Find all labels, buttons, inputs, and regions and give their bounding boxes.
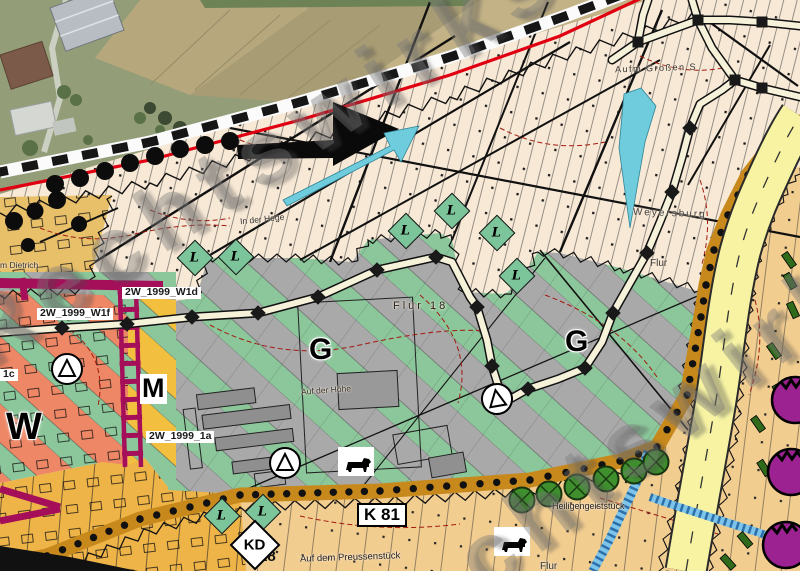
- road-sign-k81: K 81: [357, 503, 407, 527]
- map-canvas[interactable]: [0, 0, 800, 571]
- map-stage[interactable]: Rechtswirksam Rechtswirksam 2W_1999_W1d …: [0, 0, 800, 571]
